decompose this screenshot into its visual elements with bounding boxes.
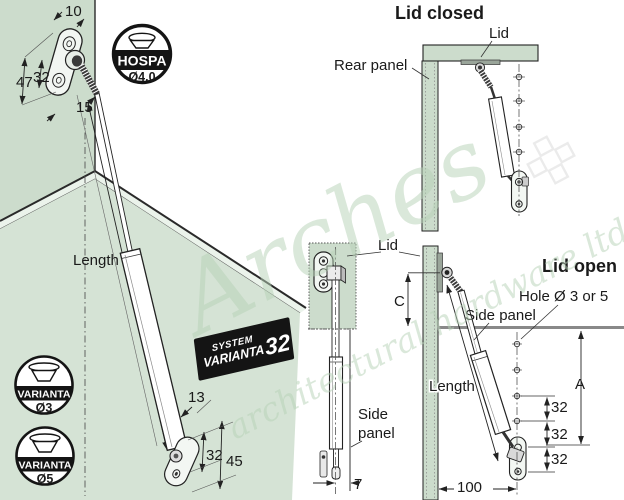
watermark-diamond-logo [525,134,577,186]
gas-strut-cylinder [489,97,515,177]
bracket-edge-front [320,451,327,477]
diagram-canvas: Length [0,0,624,500]
lid-closed-title: Lid closed [395,3,484,23]
hospa-badge: HOSPA Ø4.0 [112,26,172,85]
piston-rod [491,87,495,99]
isometric-view: Length [0,0,306,500]
dim-plate-height: 47 [16,74,33,91]
hanging-bracket [512,171,529,212]
dim-spacing-1: 32 [551,399,568,416]
length-label-open: Length [429,378,475,395]
threaded-rod [450,277,461,292]
dim-spacing-2: 32 [551,426,568,443]
side-panel-leader [474,323,489,340]
hospa-badge-name: HOSPA [118,54,167,69]
rear-panel-label: Rear panel [334,57,407,74]
dim-plate-width: 10 [65,3,82,20]
lid-label-front: Lid [378,237,398,254]
dim-offset: 7 [354,476,362,493]
ball-nut [327,266,341,280]
lid-open-title: Lid open [542,256,617,276]
dim-spacing-3: 32 [551,451,568,468]
lid-panel-open [423,246,438,500]
dim-a-label: A [575,376,585,393]
threaded-rod [480,70,491,87]
length-label: Length [73,252,119,269]
side-panel-leader [351,441,362,447]
rear-panel [422,61,438,231]
ball-socket-opening [72,55,82,66]
varianta3-name: VARIANTA [18,389,71,401]
end-fitting-front [332,467,340,479]
side-panel-label-line2: panel [358,425,395,442]
dim-bracket-width: 13 [188,389,205,406]
dim-32-stack: 32 32 32 [521,396,568,472]
dim-bracket-hole-spacing: 32 [206,447,223,464]
lid-leader-right [399,252,420,256]
front-view: Lid Side panel 7 [308,237,420,494]
lid-closed-view: Lid closed Lid Rear panel [334,3,538,231]
side-panel-label: Side panel [465,307,536,324]
varianta5-name: VARIANTA [19,460,72,472]
lid-panel-closed [423,45,538,61]
dim-depth: 100 [457,479,482,496]
cylinder-front [330,357,343,449]
technical-diagram: Length [0,0,624,500]
hospa-badge-diameter: Ø4.0 [128,70,155,84]
varianta5-size: Ø5 [37,472,54,486]
dim-bracket-height: 45 [226,453,243,470]
end-rod-front [334,449,339,467]
side-panel-label-line1: Side [358,406,388,423]
dim-c-label: C [394,293,405,310]
gas-strut-cylinder [470,351,510,435]
hole-label: Hole Ø 3 or 5 [519,288,608,305]
dim-hole-spacing: 32 [33,69,50,86]
lid-label-closed: Lid [489,25,509,42]
varianta3-size: Ø3 [36,401,53,415]
lid-open-view: Lid open Hole Ø [394,246,624,500]
